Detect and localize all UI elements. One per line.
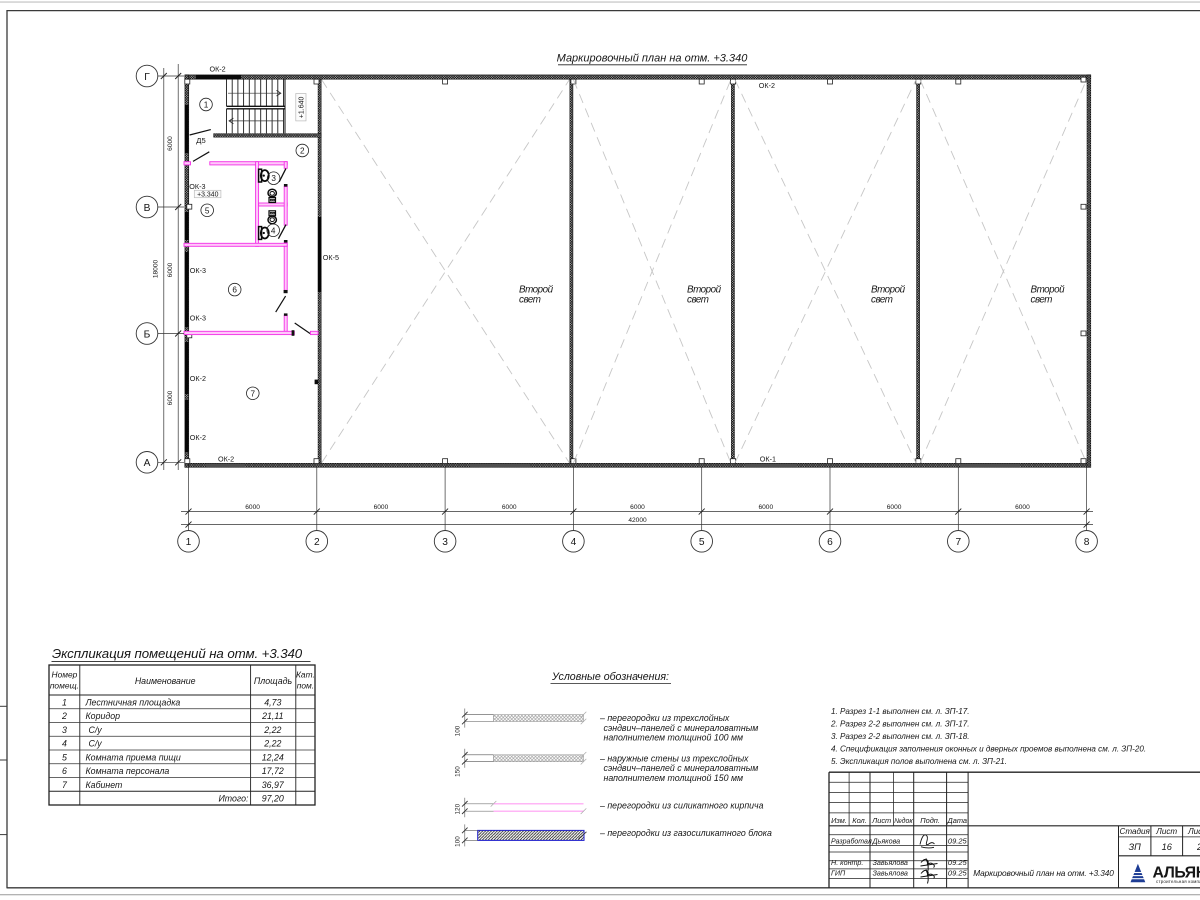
- svg-text:7: 7: [251, 389, 256, 398]
- svg-text:2,22: 2,22: [263, 739, 281, 749]
- svg-text:Д5: Д5: [196, 136, 205, 145]
- svg-text:ОК-3: ОК-3: [189, 182, 205, 191]
- svg-text:Наименование: Наименование: [135, 676, 196, 686]
- svg-text:12,24: 12,24: [262, 752, 284, 762]
- svg-text:100: 100: [455, 725, 462, 736]
- svg-text:1: 1: [62, 697, 67, 707]
- svg-text:4: 4: [271, 226, 276, 235]
- svg-text:Кабинет: Кабинет: [86, 780, 123, 790]
- svg-text:наполнителем толщиной 150 мм: наполнителем толщиной 150 мм: [604, 773, 744, 783]
- svg-text:4: 4: [571, 537, 577, 548]
- svg-text:2. Разрез 2-2 выполнен см. л.: 2. Разрез 2-2 выполнен см. л. ЗП-17.: [830, 720, 969, 729]
- svg-text:Б: Б: [144, 329, 151, 340]
- svg-text:09.25: 09.25: [948, 858, 968, 867]
- svg-text:3: 3: [271, 174, 276, 183]
- svg-text:+3.340: +3.340: [197, 191, 218, 198]
- svg-text:6000: 6000: [167, 262, 174, 277]
- svg-text:6: 6: [62, 766, 67, 776]
- svg-text:свет: свет: [871, 295, 893, 306]
- svg-text:ОК-2: ОК-2: [759, 81, 775, 90]
- svg-text:5: 5: [205, 206, 210, 215]
- svg-text:ОК-2: ОК-2: [190, 433, 206, 442]
- svg-text:Маркировочный план на отм. +3.: Маркировочный план на отм. +3.340: [557, 53, 749, 65]
- svg-text:Завьялова: Завьялова: [873, 858, 908, 867]
- svg-text:5. Экспликация полов выполнена: 5. Экспликация полов выполнена см. л. ЗП…: [831, 757, 1007, 766]
- svg-text:1. Разрез 1-1 выполнен см. л.: 1. Разрез 1-1 выполнен см. л. ЗП-17.: [831, 707, 969, 716]
- svg-text:6: 6: [232, 286, 237, 295]
- svg-text:С/у: С/у: [89, 739, 103, 749]
- svg-text:Г: Г: [144, 72, 150, 83]
- svg-text:помещ.: помещ.: [50, 681, 79, 691]
- svg-text:Коридор: Коридор: [86, 711, 121, 721]
- svg-text:ЗП: ЗП: [1129, 842, 1142, 852]
- svg-text:7: 7: [955, 537, 961, 548]
- svg-text:2: 2: [61, 711, 67, 721]
- svg-text:2,22: 2,22: [263, 725, 281, 735]
- svg-text:ОК-2: ОК-2: [218, 455, 234, 464]
- svg-text:7: 7: [62, 780, 68, 790]
- svg-text:Кат.: Кат.: [296, 670, 315, 680]
- svg-text:6000: 6000: [167, 390, 174, 405]
- svg-text:6000: 6000: [630, 504, 645, 511]
- svg-text:1: 1: [204, 101, 209, 110]
- svg-text:6000: 6000: [758, 504, 773, 511]
- svg-text:Условные обозначения:: Условные обозначения:: [551, 671, 669, 683]
- svg-text:ОК-2: ОК-2: [210, 65, 226, 74]
- svg-text:пом.: пом.: [297, 681, 314, 691]
- svg-text:97,20: 97,20: [262, 794, 284, 804]
- svg-text:Подп.: Подп.: [920, 816, 940, 825]
- svg-text:Дата: Дата: [947, 816, 968, 825]
- svg-text:2: 2: [1196, 842, 1200, 852]
- svg-text:Номер: Номер: [52, 670, 78, 680]
- svg-text:Маркировочный план на отм. +3.: Маркировочный план на отм. +3.340: [973, 868, 1114, 878]
- svg-text:свет: свет: [1031, 295, 1053, 306]
- svg-text:Кол.: Кол.: [852, 816, 867, 825]
- svg-text:Лист: Лист: [1155, 827, 1177, 836]
- svg-text:16: 16: [1162, 842, 1173, 852]
- svg-text:В: В: [144, 203, 151, 214]
- svg-text:18000: 18000: [152, 260, 159, 279]
- svg-text:4: 4: [62, 739, 67, 749]
- svg-text:6000: 6000: [245, 504, 260, 511]
- svg-text:09.25: 09.25: [948, 868, 968, 877]
- svg-text:Комната персонала: Комната персонала: [86, 766, 170, 776]
- svg-text:3. Разрез 2-2 выполнен см. л.: 3. Разрез 2-2 выполнен см. л. ЗП-18.: [831, 732, 969, 741]
- svg-text:ГИП: ГИП: [831, 868, 846, 877]
- svg-text:сэндвич–панелей с минераловатн: сэндвич–панелей с минераловатным: [604, 723, 759, 733]
- svg-text:Экспликация помещений на отм.: Экспликация помещений на отм. +3.340: [52, 646, 303, 661]
- svg-text:– перегородки из силикатного к: – перегородки из силикатного кирпича: [599, 800, 764, 810]
- svg-text:5: 5: [699, 537, 705, 548]
- svg-text:8: 8: [1084, 537, 1090, 548]
- svg-text:36,97: 36,97: [262, 780, 285, 790]
- svg-text:ОК-2: ОК-2: [190, 374, 206, 383]
- svg-text:– перегородки из газосиликатно: – перегородки из газосиликатного блока: [599, 828, 772, 838]
- svg-text:наполнителем толщиной 100 мм: наполнителем толщиной 100 мм: [604, 733, 744, 743]
- svg-text:– перегородки из трехслойных: – перегородки из трехслойных: [599, 713, 730, 723]
- svg-text:А: А: [144, 458, 151, 469]
- svg-text:Лист: Лист: [871, 816, 891, 825]
- svg-text:17,72: 17,72: [262, 766, 284, 776]
- svg-text:Дьякова: Дьякова: [872, 837, 901, 846]
- svg-text:5: 5: [62, 752, 67, 762]
- svg-text:Комната приема пищи: Комната приема пищи: [86, 752, 181, 762]
- svg-text:100: 100: [455, 836, 462, 847]
- svg-text:120: 120: [455, 803, 462, 814]
- svg-text:2: 2: [314, 537, 320, 548]
- svg-text:4,73: 4,73: [264, 697, 281, 707]
- svg-text:42000: 42000: [628, 517, 647, 524]
- svg-text:Лист: Лист: [1187, 827, 1200, 836]
- svg-text:свет: свет: [519, 295, 541, 306]
- svg-text:строительная компания: строительная компания: [1156, 879, 1200, 884]
- svg-text:6000: 6000: [167, 136, 174, 151]
- svg-text:С/у: С/у: [89, 725, 103, 735]
- svg-text:сэндвич–панелей с минераловатн: сэндвич–панелей с минераловатным: [604, 763, 759, 773]
- svg-text:3: 3: [62, 725, 67, 735]
- svg-text:3: 3: [442, 537, 448, 548]
- svg-text:Завьялова: Завьялова: [873, 868, 908, 877]
- svg-text:ОК-3: ОК-3: [190, 266, 206, 275]
- svg-text:2: 2: [300, 147, 305, 156]
- svg-text:150: 150: [455, 766, 462, 777]
- svg-text:ОК-5: ОК-5: [323, 253, 339, 262]
- svg-text:6000: 6000: [374, 504, 389, 511]
- svg-text:Н. контр.: Н. контр.: [831, 858, 863, 867]
- svg-text:09.25: 09.25: [948, 837, 968, 846]
- svg-text:ОК-1: ОК-1: [760, 455, 776, 464]
- svg-text:6: 6: [827, 537, 833, 548]
- svg-text:свет: свет: [687, 295, 709, 306]
- svg-text:ОК-3: ОК-3: [190, 313, 206, 322]
- svg-text:6000: 6000: [502, 504, 517, 511]
- svg-text:Площадь: Площадь: [254, 676, 293, 686]
- svg-text:– наружные стены из трехслойны: – наружные стены из трехслойных: [599, 753, 749, 763]
- svg-text:Стадия: Стадия: [1120, 827, 1151, 836]
- svg-text:Изм.: Изм.: [831, 816, 847, 825]
- svg-text:№док: №док: [894, 817, 913, 825]
- svg-text:Разработал: Разработал: [831, 838, 872, 846]
- svg-text:6000: 6000: [887, 504, 902, 511]
- svg-text:+1.640: +1.640: [298, 96, 305, 118]
- svg-text:6000: 6000: [1015, 504, 1030, 511]
- svg-text:Лестничная площадка: Лестничная площадка: [85, 697, 181, 707]
- svg-text:4. Спецификация заполнения око: 4. Спецификация заполнения оконных и две…: [831, 745, 1146, 754]
- svg-text:Итого:: Итого:: [219, 794, 250, 804]
- svg-text:1: 1: [186, 537, 192, 548]
- svg-text:21,11: 21,11: [261, 711, 283, 721]
